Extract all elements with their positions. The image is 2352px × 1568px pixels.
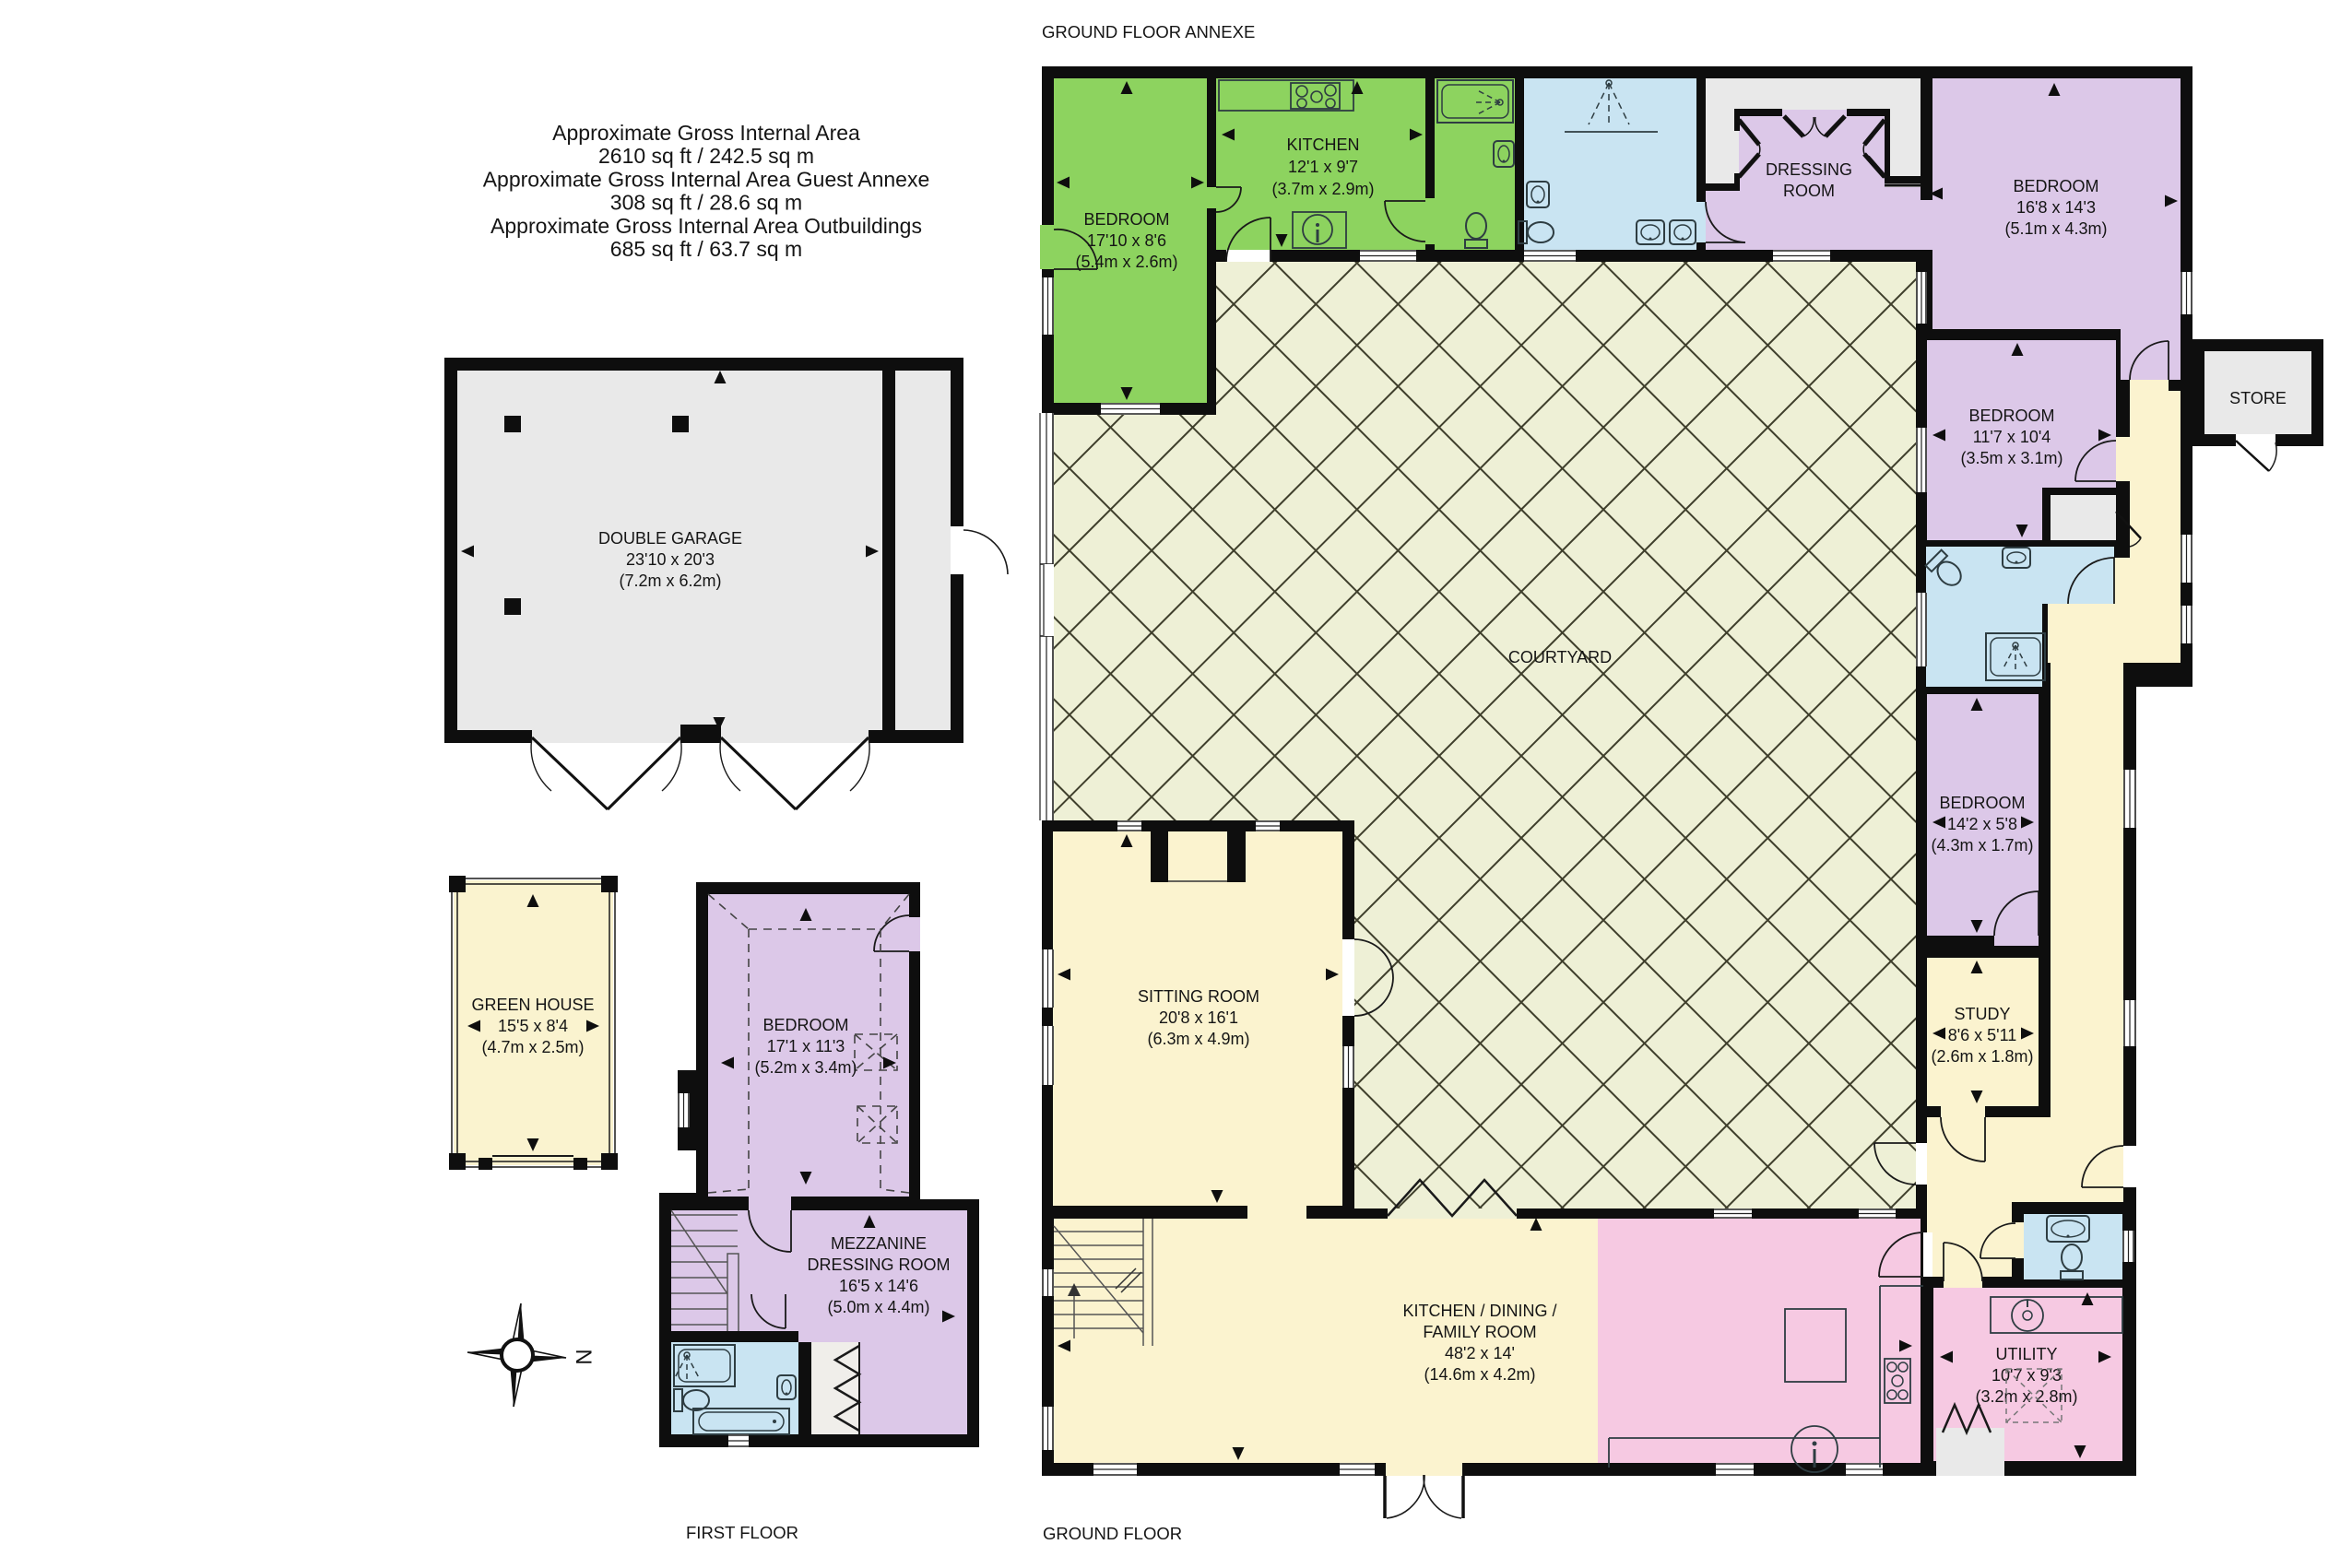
svg-text:STORE: STORE xyxy=(2229,389,2287,407)
svg-text:KITCHEN: KITCHEN xyxy=(1286,136,1359,154)
svg-text:17'10 x 8'6: 17'10 x 8'6 xyxy=(1087,231,1166,250)
svg-text:BEDROOM: BEDROOM xyxy=(2013,177,2098,195)
svg-text:BEDROOM: BEDROOM xyxy=(762,1016,848,1034)
svg-text:Approximate Gross Internal Are: Approximate Gross Internal Area Outbuild… xyxy=(490,214,922,238)
svg-text:(4.3m x 1.7m): (4.3m x 1.7m) xyxy=(1931,836,2033,855)
svg-text:GREEN HOUSE: GREEN HOUSE xyxy=(471,996,594,1014)
svg-text:(5.2m x 3.4m): (5.2m x 3.4m) xyxy=(754,1058,857,1077)
svg-text:16'8 x 14'3: 16'8 x 14'3 xyxy=(2016,198,2096,217)
svg-text:Approximate Gross Internal Are: Approximate Gross Internal Area xyxy=(552,121,860,145)
svg-text:15'5 x 8'4: 15'5 x 8'4 xyxy=(498,1017,568,1035)
svg-text:17'1 x 11'3: 17'1 x 11'3 xyxy=(767,1037,845,1055)
svg-text:DRESSING: DRESSING xyxy=(1766,160,1852,179)
svg-text:20'8 x 16'1: 20'8 x 16'1 xyxy=(1159,1008,1238,1027)
svg-text:12'1 x 9'7: 12'1 x 9'7 xyxy=(1288,158,1358,176)
svg-text:Approximate Gross Internal Are: Approximate Gross Internal Area Guest An… xyxy=(483,167,930,191)
svg-text:11'7 x 10'4: 11'7 x 10'4 xyxy=(1973,428,2051,446)
svg-text:2610 sq ft / 242.5 sq m: 2610 sq ft / 242.5 sq m xyxy=(598,144,814,168)
svg-text:(3.2m x 2.8m): (3.2m x 2.8m) xyxy=(1975,1387,2077,1406)
svg-text:UTILITY: UTILITY xyxy=(1995,1345,2057,1363)
svg-text:N: N xyxy=(571,1349,596,1364)
svg-text:(14.6m x 4.2m): (14.6m x 4.2m) xyxy=(1424,1365,1535,1384)
svg-text:308 sq ft / 28.6 sq m: 308 sq ft / 28.6 sq m xyxy=(610,191,802,215)
svg-text:MEZZANINE: MEZZANINE xyxy=(831,1234,927,1253)
svg-text:STUDY: STUDY xyxy=(1954,1005,2010,1023)
svg-text:FAMILY ROOM: FAMILY ROOM xyxy=(1423,1323,1536,1341)
svg-text:ROOM: ROOM xyxy=(1783,182,1835,200)
svg-text:(6.3m x 4.9m): (6.3m x 4.9m) xyxy=(1147,1030,1249,1048)
svg-text:(5.1m x 4.3m): (5.1m x 4.3m) xyxy=(2004,219,2107,238)
svg-text:16'5 x 14'6: 16'5 x 14'6 xyxy=(839,1277,918,1295)
svg-text:(3.7m x 2.9m): (3.7m x 2.9m) xyxy=(1271,180,1374,198)
svg-text:KITCHEN / DINING /: KITCHEN / DINING / xyxy=(1402,1302,1556,1320)
svg-text:(5.4m x 2.6m): (5.4m x 2.6m) xyxy=(1075,253,1177,271)
svg-text:BEDROOM: BEDROOM xyxy=(1939,794,2025,812)
svg-text:8'6 x 5'11: 8'6 x 5'11 xyxy=(1948,1026,2017,1044)
svg-text:BEDROOM: BEDROOM xyxy=(1968,407,2054,425)
svg-text:23'10 x 20'3: 23'10 x 20'3 xyxy=(626,550,715,569)
svg-text:48'2 x 14': 48'2 x 14' xyxy=(1445,1344,1515,1362)
svg-text:14'2 x 5'8: 14'2 x 5'8 xyxy=(1947,815,2017,833)
svg-text:DRESSING ROOM: DRESSING ROOM xyxy=(807,1256,950,1274)
svg-text:COURTYARD: COURTYARD xyxy=(1508,648,1612,666)
svg-text:GROUND FLOOR ANNEXE: GROUND FLOOR ANNEXE xyxy=(1042,22,1255,41)
svg-text:DOUBLE GARAGE: DOUBLE GARAGE xyxy=(598,529,742,548)
svg-text:BEDROOM: BEDROOM xyxy=(1083,210,1169,229)
svg-text:SITTING ROOM: SITTING ROOM xyxy=(1138,987,1259,1006)
svg-text:685 sq ft / 63.7 sq m: 685 sq ft / 63.7 sq m xyxy=(610,237,802,261)
svg-text:(4.7m x 2.5m): (4.7m x 2.5m) xyxy=(481,1038,584,1056)
svg-text:(3.5m x 3.1m): (3.5m x 3.1m) xyxy=(1960,449,2062,467)
svg-text:(2.6m x 1.8m): (2.6m x 1.8m) xyxy=(1931,1047,2033,1066)
svg-text:GROUND FLOOR: GROUND FLOOR xyxy=(1043,1524,1182,1543)
svg-text:FIRST FLOOR: FIRST FLOOR xyxy=(686,1523,798,1542)
svg-text:(5.0m x 4.4m): (5.0m x 4.4m) xyxy=(827,1298,929,1316)
svg-text:(7.2m x 6.2m): (7.2m x 6.2m) xyxy=(619,572,721,590)
